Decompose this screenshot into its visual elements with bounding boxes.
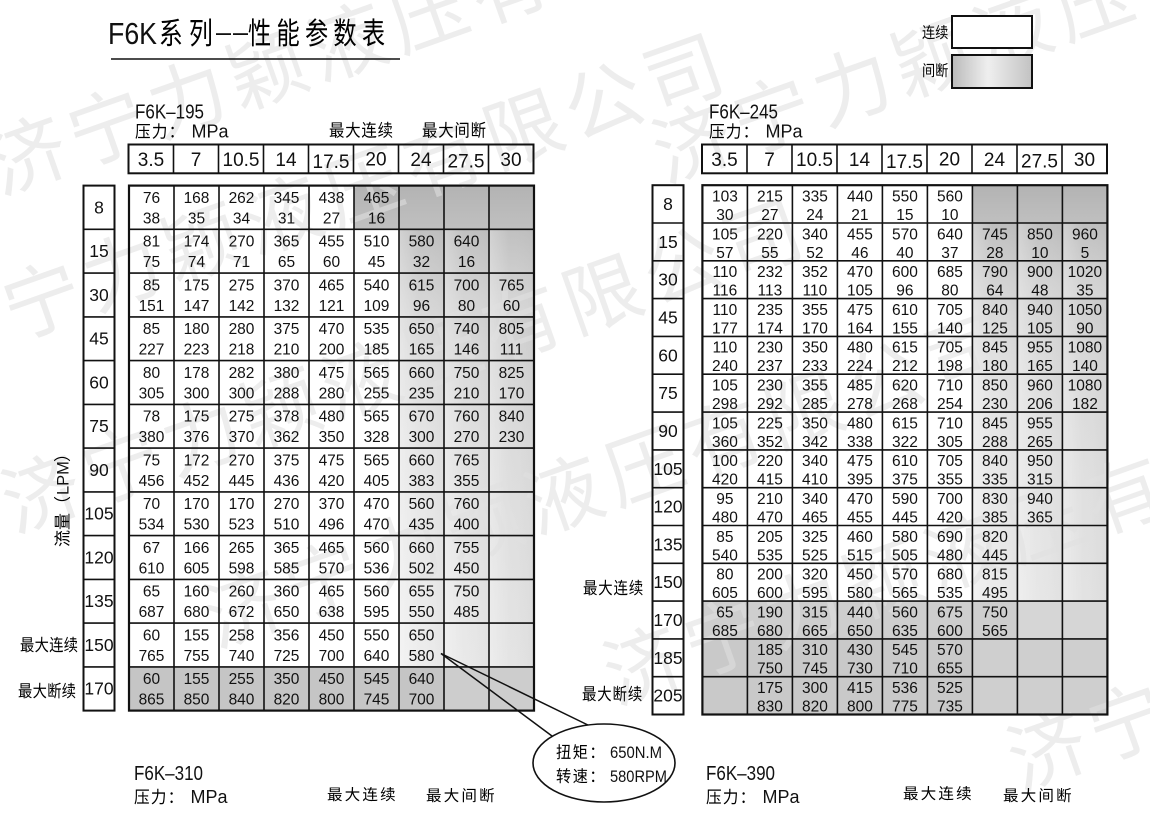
svg-text:550: 550 bbox=[892, 189, 918, 206]
svg-text:615: 615 bbox=[892, 415, 918, 432]
svg-text:110: 110 bbox=[713, 264, 738, 281]
svg-text:7: 7 bbox=[191, 150, 202, 171]
svg-text:840: 840 bbox=[229, 692, 255, 709]
svg-text:310: 310 bbox=[802, 642, 828, 659]
svg-text:570: 570 bbox=[319, 560, 345, 577]
svg-text:800: 800 bbox=[319, 692, 345, 709]
svg-text:395: 395 bbox=[847, 472, 873, 489]
svg-text:90: 90 bbox=[1076, 320, 1094, 337]
svg-text:410: 410 bbox=[802, 472, 828, 489]
svg-text:275: 275 bbox=[229, 277, 255, 294]
svg-text:24: 24 bbox=[410, 150, 432, 171]
svg-text:450: 450 bbox=[319, 671, 345, 688]
svg-text:338: 338 bbox=[847, 434, 873, 451]
svg-text:60: 60 bbox=[323, 254, 341, 271]
svg-text:280: 280 bbox=[319, 385, 345, 402]
svg-text:14: 14 bbox=[275, 150, 297, 171]
svg-text:465: 465 bbox=[319, 540, 345, 557]
svg-text:30: 30 bbox=[716, 207, 734, 224]
svg-text:105: 105 bbox=[653, 459, 682, 479]
svg-text:170: 170 bbox=[802, 320, 828, 337]
svg-text:650: 650 bbox=[409, 321, 435, 338]
svg-text:MPa: MPa bbox=[192, 122, 230, 142]
svg-text:765: 765 bbox=[139, 648, 165, 665]
svg-text:475: 475 bbox=[319, 365, 345, 382]
svg-text:65: 65 bbox=[716, 604, 733, 621]
svg-text:960: 960 bbox=[1027, 378, 1053, 395]
svg-text:262: 262 bbox=[229, 190, 255, 207]
svg-text:580RPM: 580RPM bbox=[610, 768, 667, 786]
svg-text:35: 35 bbox=[188, 210, 205, 227]
svg-text:342: 342 bbox=[802, 434, 828, 451]
svg-text:470: 470 bbox=[847, 264, 873, 281]
svg-text:840: 840 bbox=[982, 302, 1008, 319]
svg-text:595: 595 bbox=[802, 585, 828, 602]
svg-text:355: 355 bbox=[802, 302, 828, 319]
svg-text:470: 470 bbox=[847, 491, 873, 508]
svg-text:237: 237 bbox=[757, 358, 783, 375]
svg-text:535: 535 bbox=[757, 547, 783, 564]
svg-text:550: 550 bbox=[409, 604, 435, 621]
svg-text:540: 540 bbox=[364, 277, 390, 294]
svg-text:700: 700 bbox=[319, 648, 345, 665]
svg-text:212: 212 bbox=[892, 358, 918, 375]
svg-text:475: 475 bbox=[847, 453, 873, 470]
svg-text:710: 710 bbox=[937, 378, 963, 395]
svg-text:254: 254 bbox=[937, 396, 963, 413]
svg-text:535: 535 bbox=[364, 321, 390, 338]
svg-text:495: 495 bbox=[982, 585, 1008, 602]
svg-text:710: 710 bbox=[937, 415, 963, 432]
svg-text:525: 525 bbox=[937, 680, 963, 697]
svg-text:31: 31 bbox=[278, 210, 295, 227]
svg-text:96: 96 bbox=[413, 298, 430, 315]
svg-text:510: 510 bbox=[364, 234, 390, 251]
svg-text:740: 740 bbox=[229, 648, 255, 665]
svg-text:265: 265 bbox=[1027, 434, 1053, 451]
svg-text:223: 223 bbox=[184, 342, 210, 359]
svg-text:142: 142 bbox=[229, 298, 255, 315]
svg-text:120: 120 bbox=[653, 497, 682, 517]
svg-text:680: 680 bbox=[757, 623, 783, 640]
svg-text:685: 685 bbox=[712, 623, 738, 640]
svg-text:20: 20 bbox=[939, 150, 960, 171]
svg-text:955: 955 bbox=[1027, 340, 1053, 357]
svg-text:820: 820 bbox=[802, 699, 828, 716]
svg-text:10: 10 bbox=[1031, 245, 1049, 262]
svg-text:55: 55 bbox=[761, 245, 778, 262]
svg-text:170: 170 bbox=[499, 385, 525, 402]
svg-text:15: 15 bbox=[896, 207, 913, 224]
svg-text:1080: 1080 bbox=[1068, 378, 1103, 395]
svg-text:F6K–245: F6K–245 bbox=[709, 101, 778, 124]
svg-text:840: 840 bbox=[499, 409, 525, 426]
svg-text:140: 140 bbox=[1072, 358, 1098, 375]
svg-text:350: 350 bbox=[802, 340, 828, 357]
svg-text:16: 16 bbox=[368, 210, 385, 227]
svg-text:465: 465 bbox=[802, 510, 828, 527]
svg-text:865: 865 bbox=[139, 692, 165, 709]
svg-text:185: 185 bbox=[757, 642, 783, 659]
svg-text:590: 590 bbox=[892, 491, 918, 508]
svg-text:560: 560 bbox=[409, 496, 435, 513]
svg-text:436: 436 bbox=[274, 473, 300, 490]
svg-text:638: 638 bbox=[319, 604, 345, 621]
svg-text:14: 14 bbox=[849, 150, 871, 171]
svg-text:560: 560 bbox=[937, 189, 963, 206]
svg-text:355: 355 bbox=[802, 378, 828, 395]
svg-text:450: 450 bbox=[454, 560, 480, 577]
svg-text:292: 292 bbox=[757, 396, 783, 413]
svg-text:375: 375 bbox=[274, 452, 300, 469]
svg-text:550: 550 bbox=[364, 627, 390, 644]
svg-text:940: 940 bbox=[1027, 302, 1053, 319]
svg-text:270: 270 bbox=[229, 452, 255, 469]
svg-text:1050: 1050 bbox=[1068, 302, 1103, 319]
svg-text:48: 48 bbox=[1031, 283, 1048, 300]
svg-text:600: 600 bbox=[757, 585, 783, 602]
svg-text:40: 40 bbox=[896, 245, 914, 262]
svg-text:560: 560 bbox=[364, 540, 390, 557]
svg-text:3.5: 3.5 bbox=[138, 150, 164, 171]
svg-text:30: 30 bbox=[658, 270, 678, 290]
svg-text:365: 365 bbox=[274, 234, 300, 251]
svg-text:80: 80 bbox=[143, 365, 161, 382]
svg-text:740: 740 bbox=[454, 321, 480, 338]
svg-text:560: 560 bbox=[364, 584, 390, 601]
svg-text:850: 850 bbox=[184, 692, 210, 709]
svg-text:820: 820 bbox=[274, 692, 300, 709]
svg-text:635: 635 bbox=[892, 623, 918, 640]
svg-text:470: 470 bbox=[364, 517, 390, 534]
svg-text:20: 20 bbox=[365, 150, 386, 171]
svg-text:80: 80 bbox=[716, 567, 734, 584]
svg-text:545: 545 bbox=[892, 642, 918, 659]
svg-text:5: 5 bbox=[1081, 245, 1090, 262]
svg-text:175: 175 bbox=[184, 409, 210, 426]
svg-text:705: 705 bbox=[937, 340, 963, 357]
svg-text:230: 230 bbox=[757, 378, 783, 395]
svg-text:672: 672 bbox=[229, 604, 255, 621]
svg-text:362: 362 bbox=[274, 429, 300, 446]
svg-text:315: 315 bbox=[802, 604, 828, 621]
svg-text:356: 356 bbox=[274, 627, 300, 644]
svg-text:315: 315 bbox=[1027, 472, 1053, 489]
svg-text:24: 24 bbox=[806, 207, 824, 224]
svg-text:680: 680 bbox=[937, 567, 963, 584]
svg-text:45: 45 bbox=[368, 254, 385, 271]
svg-text:565: 565 bbox=[982, 623, 1008, 640]
svg-text:74: 74 bbox=[188, 254, 206, 271]
svg-text:830: 830 bbox=[757, 699, 783, 716]
svg-text:400: 400 bbox=[454, 517, 480, 534]
svg-text:690: 690 bbox=[937, 529, 963, 546]
svg-text:30: 30 bbox=[500, 150, 521, 171]
svg-text:760: 760 bbox=[454, 409, 480, 426]
svg-text:105: 105 bbox=[1027, 320, 1053, 337]
svg-text:305: 305 bbox=[937, 434, 963, 451]
svg-text:215: 215 bbox=[757, 189, 783, 206]
svg-text:67: 67 bbox=[143, 540, 160, 557]
svg-text:825: 825 bbox=[499, 365, 525, 382]
svg-text:27: 27 bbox=[761, 207, 778, 224]
svg-text:113: 113 bbox=[758, 283, 783, 300]
svg-text:LPM: LPM bbox=[55, 461, 73, 495]
svg-text:37: 37 bbox=[941, 245, 958, 262]
svg-text:65: 65 bbox=[143, 584, 160, 601]
svg-text:205: 205 bbox=[757, 529, 783, 546]
svg-text:960: 960 bbox=[1072, 226, 1098, 243]
svg-text:180: 180 bbox=[982, 358, 1008, 375]
svg-text:F6K–195: F6K–195 bbox=[135, 101, 204, 124]
svg-text:565: 565 bbox=[364, 409, 390, 426]
svg-text:300: 300 bbox=[229, 385, 255, 402]
svg-text:570: 570 bbox=[892, 567, 918, 584]
svg-text:805: 805 bbox=[499, 321, 525, 338]
svg-text:790: 790 bbox=[982, 264, 1008, 281]
svg-text:435: 435 bbox=[409, 517, 435, 534]
svg-text:420: 420 bbox=[712, 472, 738, 489]
svg-text:322: 322 bbox=[892, 434, 918, 451]
svg-text:76: 76 bbox=[143, 190, 160, 207]
svg-text:135: 135 bbox=[653, 534, 682, 554]
svg-text:198: 198 bbox=[937, 358, 963, 375]
svg-text:580: 580 bbox=[892, 529, 918, 546]
svg-text:705: 705 bbox=[937, 302, 963, 319]
svg-text:655: 655 bbox=[937, 661, 963, 678]
svg-text:620: 620 bbox=[892, 378, 918, 395]
svg-text:103: 103 bbox=[712, 189, 738, 206]
svg-text:940: 940 bbox=[1027, 491, 1053, 508]
svg-text:155: 155 bbox=[892, 320, 918, 337]
svg-text:38: 38 bbox=[143, 210, 160, 227]
svg-text:470: 470 bbox=[757, 510, 783, 527]
svg-text:440: 440 bbox=[847, 189, 873, 206]
svg-text:600: 600 bbox=[937, 623, 963, 640]
svg-text:680: 680 bbox=[184, 604, 210, 621]
svg-text:75: 75 bbox=[143, 452, 160, 469]
svg-text:710: 710 bbox=[892, 661, 918, 678]
svg-text:765: 765 bbox=[454, 452, 480, 469]
svg-text:580: 580 bbox=[409, 648, 435, 665]
svg-text:60: 60 bbox=[143, 671, 161, 688]
svg-text:650: 650 bbox=[274, 604, 300, 621]
svg-text:34: 34 bbox=[233, 210, 251, 227]
svg-text:270: 270 bbox=[274, 496, 300, 513]
svg-text:45: 45 bbox=[658, 308, 677, 328]
svg-text:430: 430 bbox=[847, 642, 873, 659]
svg-text:350: 350 bbox=[274, 671, 300, 688]
svg-text:255: 255 bbox=[364, 385, 390, 402]
svg-text:610: 610 bbox=[139, 560, 165, 577]
svg-text:190: 190 bbox=[757, 604, 783, 621]
svg-text:375: 375 bbox=[892, 472, 918, 489]
svg-text:655: 655 bbox=[409, 584, 435, 601]
svg-text:815: 815 bbox=[982, 567, 1008, 584]
svg-text:540: 540 bbox=[712, 547, 738, 564]
svg-text:535: 535 bbox=[937, 585, 963, 602]
svg-text:640: 640 bbox=[364, 648, 390, 665]
svg-text:475: 475 bbox=[847, 302, 873, 319]
svg-text:845: 845 bbox=[982, 340, 1008, 357]
svg-text:376: 376 bbox=[184, 429, 210, 446]
svg-text:955: 955 bbox=[1027, 415, 1053, 432]
svg-text:60: 60 bbox=[658, 345, 678, 365]
svg-text:438: 438 bbox=[319, 190, 345, 207]
svg-text:830: 830 bbox=[982, 491, 1008, 508]
svg-text:121: 121 bbox=[319, 298, 345, 315]
svg-text:480: 480 bbox=[319, 409, 345, 426]
svg-text:580: 580 bbox=[847, 585, 873, 602]
svg-text:950: 950 bbox=[1027, 453, 1053, 470]
svg-text:615: 615 bbox=[409, 277, 435, 294]
svg-text:480: 480 bbox=[847, 340, 873, 357]
svg-text:370: 370 bbox=[229, 429, 255, 446]
svg-text:175: 175 bbox=[184, 277, 210, 294]
svg-text:MPa: MPa bbox=[191, 787, 229, 807]
svg-text:205: 205 bbox=[653, 686, 682, 706]
svg-text:1080: 1080 bbox=[1068, 340, 1103, 357]
svg-text:585: 585 bbox=[274, 560, 300, 577]
svg-text:405: 405 bbox=[364, 473, 390, 490]
svg-text:120: 120 bbox=[84, 548, 113, 568]
svg-text:275: 275 bbox=[229, 409, 255, 426]
svg-text:305: 305 bbox=[139, 385, 165, 402]
svg-text:3.5: 3.5 bbox=[711, 150, 737, 171]
svg-text:80: 80 bbox=[458, 298, 476, 315]
svg-text:80: 80 bbox=[941, 283, 959, 300]
svg-text:355: 355 bbox=[454, 473, 480, 490]
svg-text:278: 278 bbox=[847, 396, 873, 413]
svg-text:370: 370 bbox=[274, 277, 300, 294]
svg-text:750: 750 bbox=[982, 604, 1008, 621]
svg-text:536: 536 bbox=[892, 680, 918, 697]
svg-text:166: 166 bbox=[184, 540, 210, 557]
svg-text:288: 288 bbox=[274, 385, 300, 402]
svg-text:60: 60 bbox=[89, 373, 109, 393]
svg-text:160: 160 bbox=[184, 584, 210, 601]
svg-text:109: 109 bbox=[364, 298, 390, 315]
svg-text:660: 660 bbox=[409, 540, 435, 557]
svg-text:15: 15 bbox=[658, 232, 677, 252]
svg-text:64: 64 bbox=[986, 283, 1004, 300]
svg-text:230: 230 bbox=[982, 396, 1008, 413]
svg-text:30: 30 bbox=[89, 285, 109, 305]
svg-text:670: 670 bbox=[409, 409, 435, 426]
svg-text:100: 100 bbox=[712, 453, 738, 470]
svg-text:81: 81 bbox=[143, 234, 160, 251]
svg-text:335: 335 bbox=[982, 472, 1008, 489]
svg-text:218: 218 bbox=[229, 342, 255, 359]
svg-text:455: 455 bbox=[847, 226, 873, 243]
svg-text:325: 325 bbox=[802, 529, 828, 546]
svg-text:352: 352 bbox=[802, 264, 828, 281]
svg-text:445: 445 bbox=[982, 547, 1008, 564]
svg-text:111: 111 bbox=[500, 342, 524, 359]
svg-text:90: 90 bbox=[89, 460, 109, 480]
svg-text:200: 200 bbox=[757, 567, 783, 584]
svg-text:132: 132 bbox=[274, 298, 300, 315]
svg-text:685: 685 bbox=[937, 264, 963, 281]
svg-text:480: 480 bbox=[712, 510, 738, 527]
svg-text:233: 233 bbox=[802, 358, 828, 375]
svg-text:525: 525 bbox=[802, 547, 828, 564]
svg-text:135: 135 bbox=[84, 591, 113, 611]
svg-text:534: 534 bbox=[139, 517, 165, 534]
svg-text:140: 140 bbox=[937, 320, 963, 337]
svg-text:8: 8 bbox=[663, 194, 673, 214]
svg-text:465: 465 bbox=[364, 190, 390, 207]
svg-text:298: 298 bbox=[712, 396, 738, 413]
svg-text:174: 174 bbox=[184, 234, 210, 251]
svg-text:96: 96 bbox=[896, 283, 913, 300]
svg-text:85: 85 bbox=[716, 529, 733, 546]
svg-text:750: 750 bbox=[454, 584, 480, 601]
svg-text:185: 185 bbox=[364, 342, 390, 359]
svg-text:206: 206 bbox=[1027, 396, 1053, 413]
svg-text:745: 745 bbox=[364, 692, 390, 709]
svg-text:105: 105 bbox=[847, 283, 873, 300]
svg-text:220: 220 bbox=[757, 226, 783, 243]
svg-text:220: 220 bbox=[757, 453, 783, 470]
svg-text:605: 605 bbox=[184, 560, 210, 577]
svg-text:365: 365 bbox=[274, 540, 300, 557]
svg-text:610: 610 bbox=[892, 302, 918, 319]
svg-text:705: 705 bbox=[937, 453, 963, 470]
svg-text:60: 60 bbox=[143, 627, 161, 644]
svg-text:320: 320 bbox=[802, 567, 828, 584]
svg-text:210: 210 bbox=[454, 385, 480, 402]
svg-text:10.5: 10.5 bbox=[796, 150, 833, 171]
svg-text:350: 350 bbox=[319, 429, 345, 446]
svg-text:182: 182 bbox=[1072, 396, 1098, 413]
svg-text:383: 383 bbox=[409, 473, 435, 490]
svg-text:28: 28 bbox=[986, 245, 1003, 262]
svg-text:598: 598 bbox=[229, 560, 255, 577]
svg-text:665: 665 bbox=[802, 623, 828, 640]
svg-text:300: 300 bbox=[802, 680, 828, 697]
svg-text:496: 496 bbox=[319, 517, 345, 534]
svg-text:116: 116 bbox=[713, 283, 738, 300]
svg-text:MPa: MPa bbox=[766, 122, 804, 142]
svg-text:415: 415 bbox=[757, 472, 783, 489]
svg-text:32: 32 bbox=[413, 254, 430, 271]
svg-text:110: 110 bbox=[803, 283, 828, 300]
svg-text:70: 70 bbox=[143, 496, 161, 513]
svg-text:350: 350 bbox=[802, 415, 828, 432]
svg-text:164: 164 bbox=[847, 320, 873, 337]
svg-text:470: 470 bbox=[364, 496, 390, 513]
svg-text:610: 610 bbox=[892, 453, 918, 470]
svg-text:505: 505 bbox=[892, 547, 918, 564]
svg-text:660: 660 bbox=[409, 452, 435, 469]
svg-text:452: 452 bbox=[184, 473, 210, 490]
svg-text:90: 90 bbox=[658, 421, 678, 441]
svg-text:750: 750 bbox=[757, 661, 783, 678]
svg-text:570: 570 bbox=[937, 642, 963, 659]
svg-text:270: 270 bbox=[229, 234, 255, 251]
svg-text:460: 460 bbox=[847, 529, 873, 546]
svg-text:300: 300 bbox=[184, 385, 210, 402]
svg-text:146: 146 bbox=[454, 342, 480, 359]
svg-text:1020: 1020 bbox=[1068, 264, 1103, 281]
svg-text:650: 650 bbox=[409, 627, 435, 644]
svg-text:355: 355 bbox=[937, 472, 963, 489]
svg-text:440: 440 bbox=[847, 604, 873, 621]
svg-text:170: 170 bbox=[653, 610, 682, 630]
svg-text:675: 675 bbox=[937, 604, 963, 621]
svg-text:485: 485 bbox=[454, 604, 480, 621]
